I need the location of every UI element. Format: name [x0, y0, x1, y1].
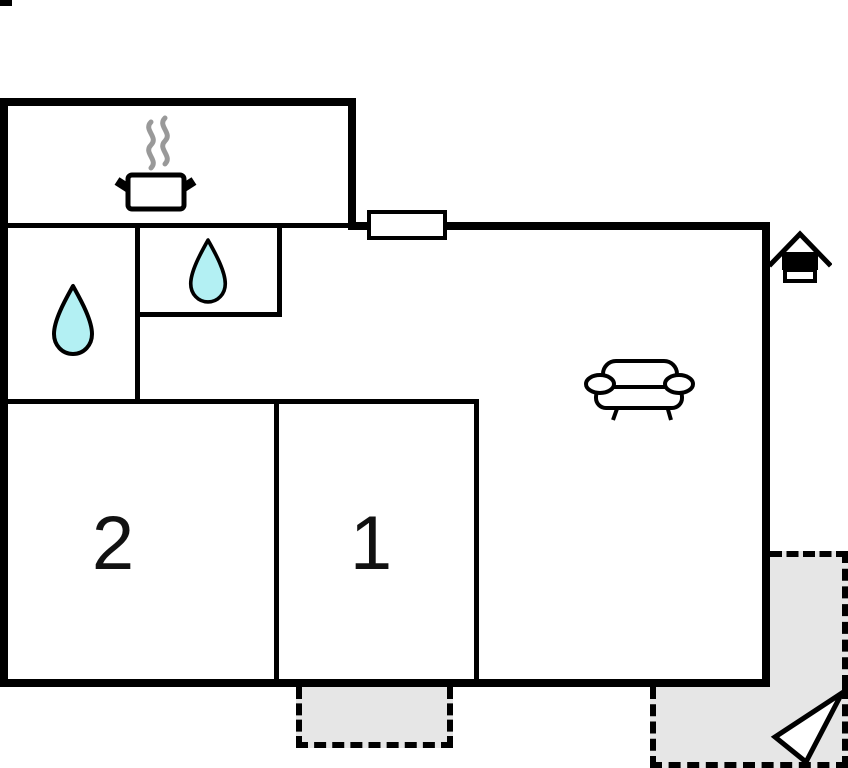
arrow-shape — [775, 693, 842, 762]
wall-bathroom-bottom — [135, 312, 282, 317]
wall-bedroom1-right — [474, 399, 479, 684]
floor-plan: 2 1 — [0, 0, 848, 768]
wall-top — [0, 98, 356, 106]
wall-bottom — [0, 679, 770, 687]
room-2-label: 2 — [58, 504, 168, 584]
stove-pot-icon — [105, 112, 205, 212]
wall-bathroom-right — [277, 223, 282, 317]
sofa-icon — [582, 356, 696, 422]
door-marker — [367, 210, 447, 240]
steam-line-right — [163, 118, 168, 164]
sofa-armrest-left — [586, 375, 614, 393]
terrace-right-strip — [770, 551, 848, 687]
wall-door-right — [447, 222, 770, 230]
wall-kitchen-bottom — [0, 223, 352, 228]
entrance-house-icon — [766, 228, 832, 288]
steam-line-left — [149, 122, 154, 168]
house-body-top — [782, 252, 818, 270]
water-drop-icon — [188, 237, 228, 305]
sofa-armrest-right — [665, 375, 693, 393]
water-drop-shape — [191, 240, 226, 302]
wall-kitchen-right — [348, 98, 356, 230]
terrace-bottom-middle — [296, 687, 453, 748]
direction-arrow-icon — [770, 688, 848, 768]
water-drop-shape — [54, 286, 92, 354]
wall-bedroom-divider — [274, 399, 279, 684]
water-drop-icon — [51, 283, 95, 357]
wall-bedrooms-top — [0, 399, 479, 404]
room-1-label: 1 — [316, 504, 426, 584]
wall-right — [762, 222, 770, 687]
house-body-bottom — [785, 270, 815, 281]
terrace-top-left — [0, 0, 12, 6]
pot-body — [128, 175, 184, 209]
wall-left — [0, 98, 8, 687]
